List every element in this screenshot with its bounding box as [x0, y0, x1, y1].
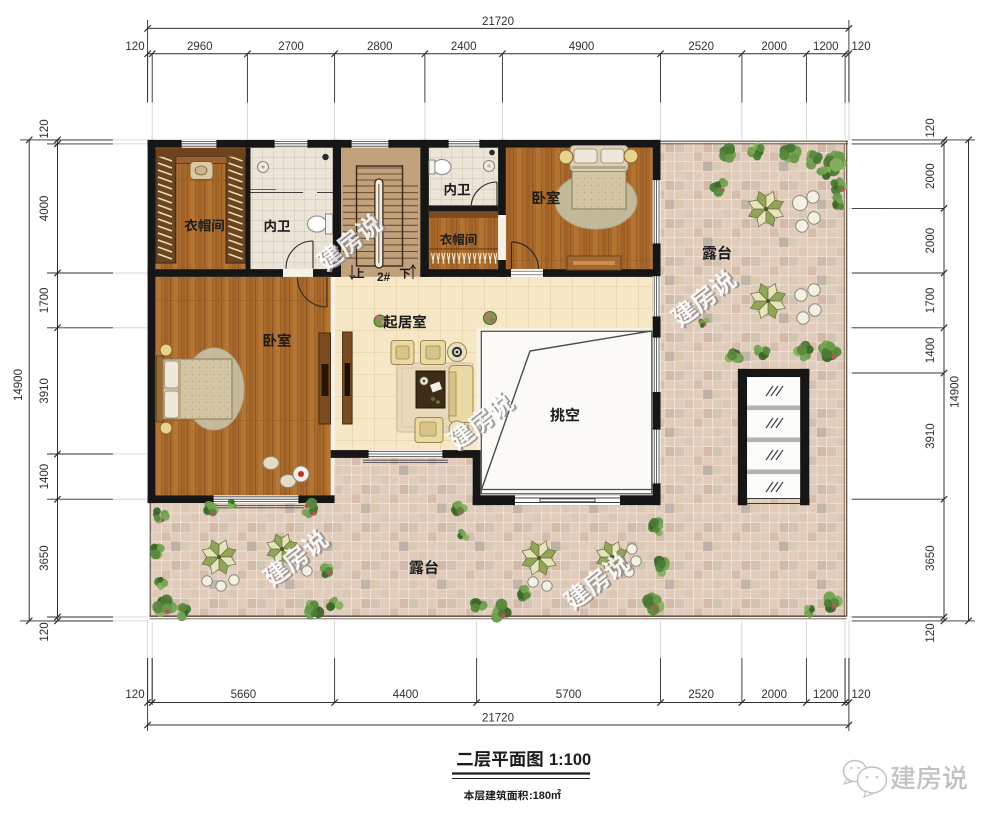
svg-text:2000: 2000 [761, 41, 787, 53]
svg-text:3910: 3910 [39, 378, 51, 404]
svg-text:120: 120 [125, 689, 144, 701]
svg-text:4900: 4900 [569, 41, 595, 53]
svg-text:120: 120 [39, 119, 51, 138]
svg-text:2520: 2520 [688, 41, 714, 53]
svg-text:1400: 1400 [39, 464, 51, 490]
svg-text:4000: 4000 [39, 196, 51, 222]
svg-text:3910: 3910 [925, 423, 937, 449]
svg-text:14900: 14900 [13, 369, 25, 401]
svg-text:2000: 2000 [925, 163, 937, 189]
svg-text:120: 120 [39, 622, 51, 641]
svg-text:2520: 2520 [688, 689, 714, 701]
svg-text:1:100: 1:100 [549, 751, 591, 769]
svg-text:1700: 1700 [39, 288, 51, 314]
svg-text:1200: 1200 [813, 41, 839, 53]
svg-text:120: 120 [925, 118, 937, 137]
svg-text:120: 120 [851, 689, 870, 701]
svg-text:2000: 2000 [925, 228, 937, 254]
svg-text:1400: 1400 [925, 338, 937, 364]
svg-text:2960: 2960 [187, 41, 213, 53]
svg-text:14900: 14900 [950, 376, 962, 408]
svg-text:2: 2 [557, 787, 561, 796]
svg-text:1200: 1200 [813, 689, 839, 701]
svg-text:120: 120 [125, 41, 144, 53]
svg-text:21720: 21720 [482, 713, 514, 725]
svg-text:2000: 2000 [761, 689, 787, 701]
svg-text:2700: 2700 [278, 41, 304, 53]
svg-text:2#: 2# [377, 270, 391, 284]
svg-text:120: 120 [925, 623, 937, 642]
svg-text:2800: 2800 [367, 41, 393, 53]
svg-text:21720: 21720 [482, 16, 514, 28]
svg-text:2400: 2400 [451, 41, 477, 53]
svg-text:5700: 5700 [556, 689, 582, 701]
svg-text:3650: 3650 [925, 545, 937, 571]
svg-text:1700: 1700 [925, 288, 937, 314]
svg-text:5660: 5660 [231, 689, 257, 701]
svg-text:3650: 3650 [39, 545, 51, 571]
svg-text:4400: 4400 [393, 689, 419, 701]
svg-text:120: 120 [851, 41, 870, 53]
